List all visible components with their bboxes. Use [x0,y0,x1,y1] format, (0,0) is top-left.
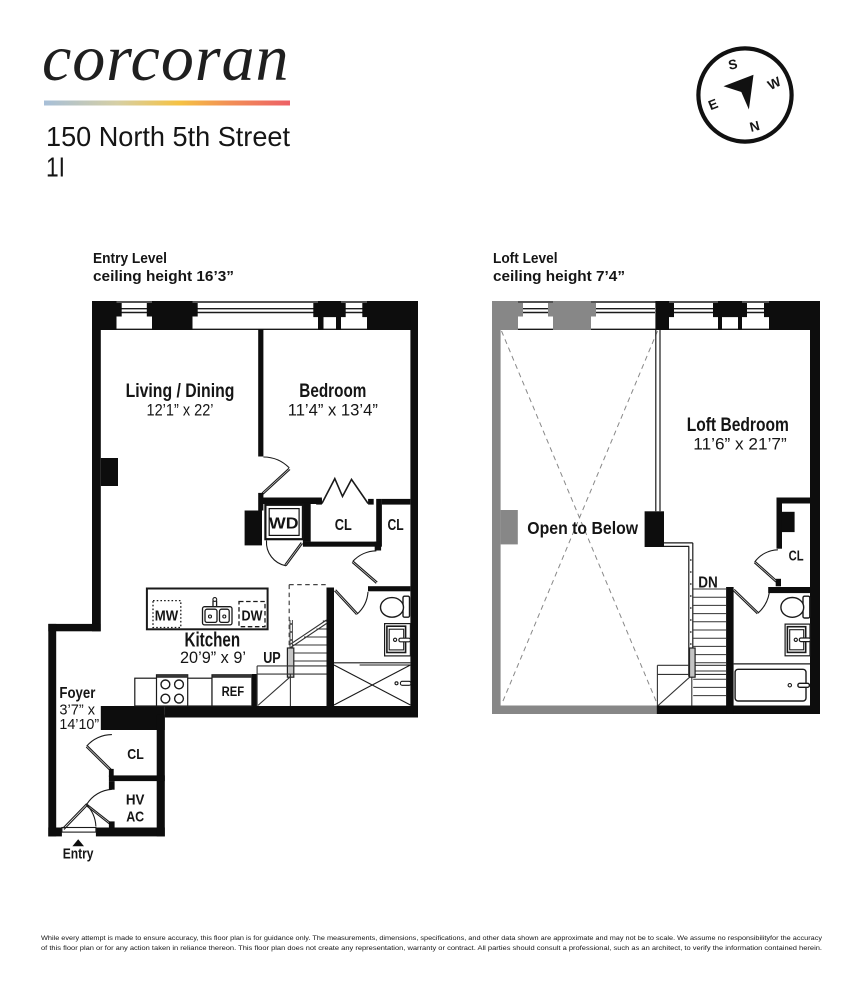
svg-text:12’1” x 22’: 12’1” x 22’ [147,401,214,420]
svg-text:Loft Level: Loft Level [493,250,558,267]
svg-text:Living / Dining: Living / Dining [126,380,235,402]
svg-text:While every attempt is made to: While every attempt is made to ensure ac… [41,935,823,942]
svg-text:of this floor plan or for any: of this floor plan or for any action tak… [41,945,822,952]
svg-text:Loft Bedroom: Loft Bedroom [687,414,789,436]
svg-text:CL: CL [335,517,352,534]
svg-text:CL: CL [127,746,144,763]
svg-text:UP: UP [263,650,281,667]
svg-text:Entry: Entry [63,846,94,863]
svg-text:ceiling height 7’4”: ceiling height 7’4” [493,268,625,285]
svg-text:Entry Level: Entry Level [93,250,167,267]
svg-text:DW: DW [242,608,263,624]
svg-text:150 North 5th Street: 150 North 5th Street [46,121,290,152]
svg-text:WD: WD [269,516,299,533]
svg-text:DN: DN [698,575,718,592]
svg-text:Foyer: Foyer [59,685,95,702]
svg-text:HV: HV [126,792,145,809]
svg-text:14’10”: 14’10” [59,717,99,733]
svg-text:1I: 1I [46,152,65,183]
svg-text:20’9” x 9’: 20’9” x 9’ [180,648,246,667]
svg-text:REF: REF [222,684,245,699]
svg-text:MW: MW [155,608,179,624]
svg-text:Open to Below: Open to Below [527,518,638,538]
svg-text:CL: CL [789,549,804,565]
svg-text:ceiling height 16’3”: ceiling height 16’3” [93,268,234,285]
svg-text:AC: AC [126,809,144,826]
svg-text:CL: CL [388,517,404,534]
svg-text:11’6” x 21’7”: 11’6” x 21’7” [693,435,787,454]
svg-text:11’4” x 13’4”: 11’4” x 13’4” [288,401,379,420]
svg-text:Bedroom: Bedroom [299,380,366,402]
svg-text:corcoran: corcoran [42,22,290,95]
